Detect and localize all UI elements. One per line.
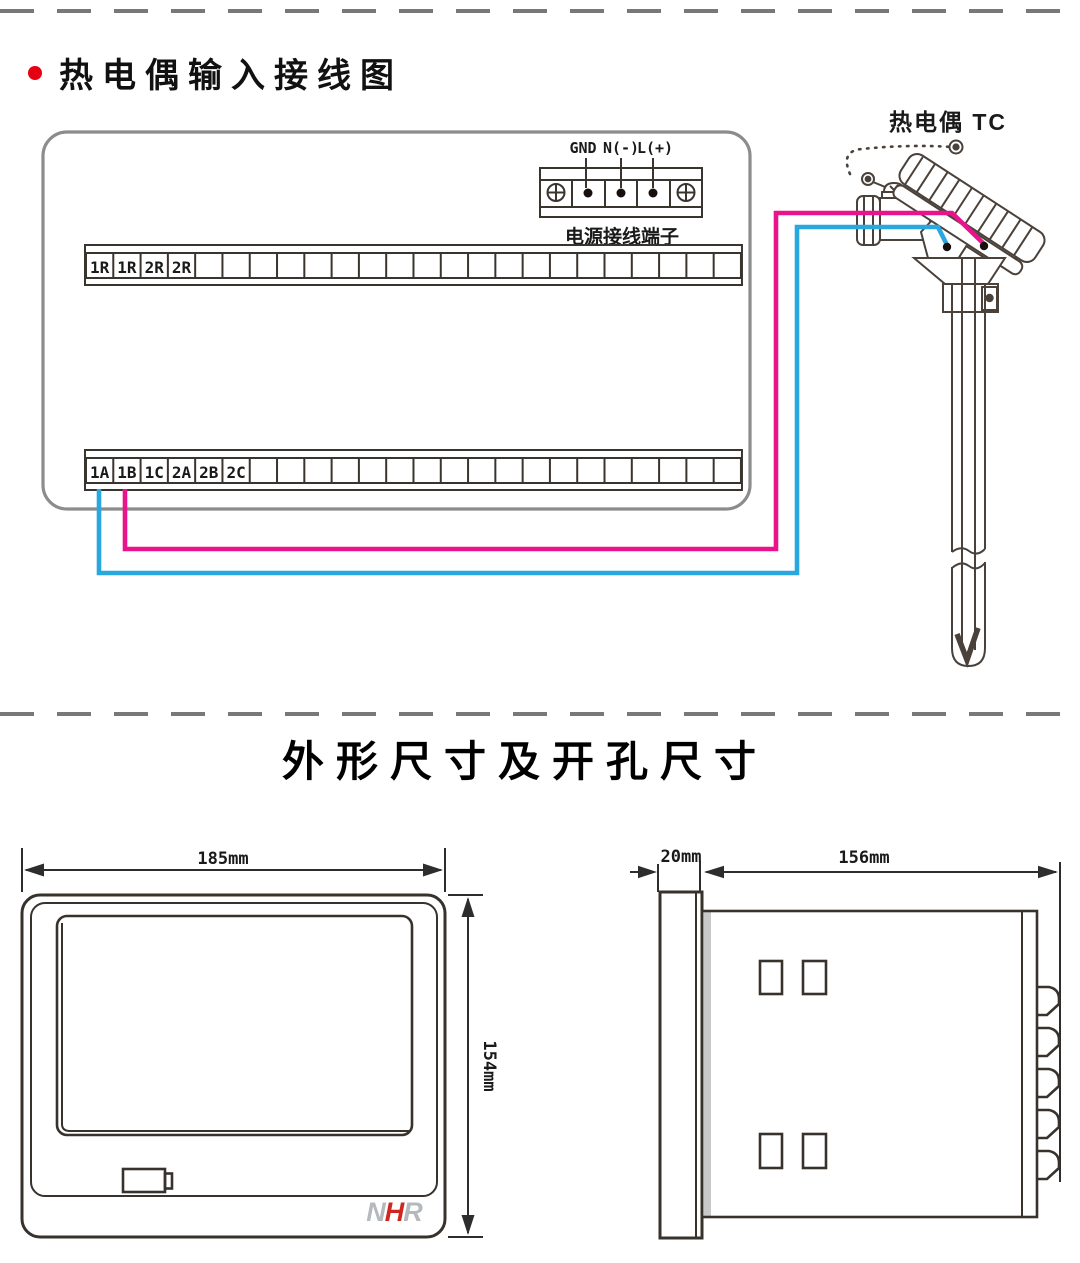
- rear-latch-hook: [1037, 1151, 1059, 1179]
- collar-screw-dot: [986, 295, 992, 301]
- arrowhead-right: [423, 864, 443, 877]
- mounting-slot: [760, 961, 782, 994]
- front-view-drawing: [22, 895, 445, 1237]
- logo-letter-n: N: [366, 1197, 386, 1227]
- tc-terminal-dot: [980, 242, 988, 250]
- terminal-cell-label: 2R: [172, 258, 192, 277]
- rear-latch-hook: [1037, 1028, 1059, 1056]
- terminal-cell-label: 2R: [145, 258, 165, 277]
- measuring-junction-v-mark: [957, 628, 978, 660]
- logo-letter-r: R: [403, 1197, 423, 1227]
- side-view-dimensions: [630, 861, 1060, 1182]
- gnd-terminal-dot: [584, 189, 593, 198]
- front-outer-case: [22, 895, 445, 1237]
- side-depth-label: 156mm: [838, 848, 889, 868]
- dashed-separator-middle: [0, 712, 1080, 716]
- chain-eyelet-pin: [866, 177, 871, 182]
- terminal-cell-label: 2C: [226, 463, 245, 482]
- tc-terminal-dot: [943, 243, 951, 251]
- dimension-drawings: 185mm 154mm NHR 20mm 156mm: [0, 720, 1080, 1263]
- logo-letter-h: H: [385, 1197, 405, 1227]
- nhr-logo: NHR: [366, 1197, 423, 1227]
- front-screen: [57, 916, 412, 1135]
- probe-break-line: [952, 548, 985, 553]
- probe-break-line: [952, 563, 985, 568]
- mounting-slot: [803, 1134, 826, 1168]
- chain-eyelet-pin: [953, 144, 958, 149]
- head-neck-funnel: [914, 258, 1005, 284]
- arrowhead-left: [704, 866, 724, 879]
- arrowhead-down: [462, 1215, 475, 1235]
- manual-page: 热电偶输入接线图 GND N(-) L(+: [0, 0, 1080, 1263]
- terminal-cell-label: 1R: [117, 258, 137, 277]
- mounting-slot: [760, 1134, 782, 1168]
- front-inner-panel: [31, 903, 437, 1196]
- side-case-body: [702, 911, 1037, 1217]
- rear-latch-hook: [1037, 987, 1059, 1015]
- terminal-cell-label: 2B: [199, 463, 219, 482]
- side-gasket-strip: [703, 912, 711, 1216]
- compression-nut: [857, 196, 880, 245]
- line-terminal-dot: [649, 189, 658, 198]
- front-screen-bezel-line: [62, 923, 410, 1131]
- positive-wire-1B-to-tc: [125, 213, 984, 549]
- terminal-cell-label: 1A: [90, 463, 110, 482]
- neutral-label: N(-): [603, 139, 639, 157]
- thermocouple-drawing: [847, 141, 1048, 667]
- arrowhead-right: [1038, 866, 1058, 879]
- terminal-cell-label: 1C: [145, 463, 164, 482]
- terminal-cell-label: 2A: [172, 463, 192, 482]
- side-bezel-label: 20mm: [661, 847, 702, 867]
- thermocouple-label: 热电偶 TC: [889, 109, 1007, 135]
- rear-latch-hook: [1037, 1110, 1059, 1138]
- arrowhead-right: [638, 866, 657, 879]
- thermocouple-wiring-diagram: GND N(-) L(+) 电源接线端子 1R1R2R2R 1A1B1C2A2B…: [0, 0, 1080, 700]
- gnd-label: GND: [569, 139, 596, 157]
- side-view-drawing: [660, 892, 1059, 1238]
- front-view-dimensions: [22, 848, 483, 1237]
- front-width-label: 185mm: [197, 849, 248, 869]
- neutral-terminal-dot: [617, 189, 626, 198]
- terminal-strip-bottom: 1A1B1C2A2B2C: [85, 450, 742, 490]
- battery-slot-icon: [123, 1169, 165, 1192]
- arrowhead-left: [24, 864, 44, 877]
- arrowhead-up: [462, 897, 475, 917]
- terminal-cell-label: 1R: [90, 258, 110, 277]
- mounting-slot: [803, 961, 826, 994]
- instrument-rear-panel-outline: [43, 132, 750, 509]
- rear-latch-hook: [1037, 1069, 1059, 1097]
- battery-slot-tab: [165, 1174, 172, 1189]
- terminal-cell-label: 1B: [117, 463, 137, 482]
- front-height-label: 154mm: [479, 1040, 499, 1091]
- terminal-strip-top: 1R1R2R2R: [85, 245, 742, 285]
- line-label: L(+): [637, 139, 673, 157]
- power-terminal-block: [540, 158, 702, 217]
